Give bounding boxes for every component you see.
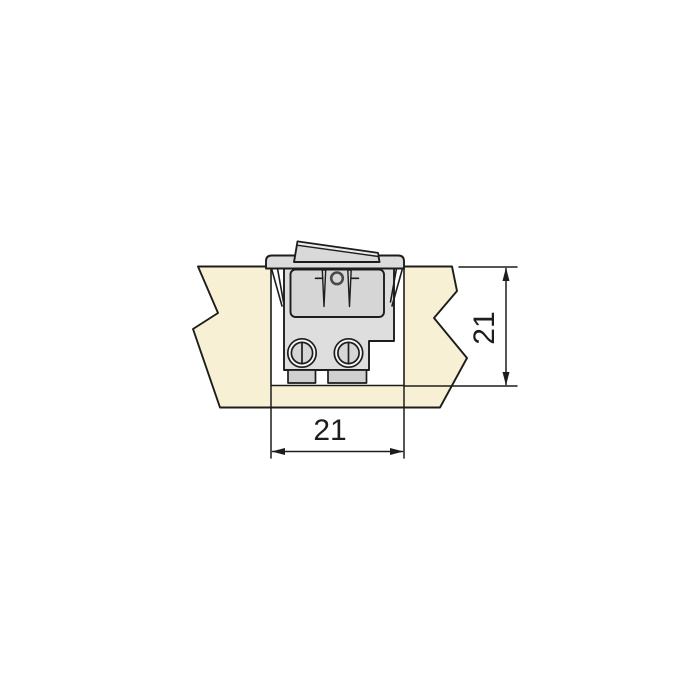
linework	[193, 242, 517, 459]
technical-drawing: 21 21	[0, 0, 700, 700]
depth-arrow-top-icon	[503, 268, 510, 282]
width-dimension	[272, 448, 404, 455]
width-arrow-left-icon	[272, 448, 286, 455]
screw-terminal-right	[334, 339, 362, 367]
width-dimension-label: 21	[313, 414, 346, 447]
depth-arrow-bottom-icon	[503, 372, 510, 386]
depth-dimension	[503, 268, 510, 386]
width-arrow-right-icon	[390, 448, 404, 455]
diagram-canvas: 21 21	[0, 0, 700, 700]
screw-terminal-left	[288, 339, 316, 367]
terminal-tab-right	[328, 370, 367, 383]
switch-face-plate	[291, 270, 385, 318]
terminal-tab-left	[288, 370, 316, 383]
depth-dimension-label: 21	[468, 311, 501, 344]
